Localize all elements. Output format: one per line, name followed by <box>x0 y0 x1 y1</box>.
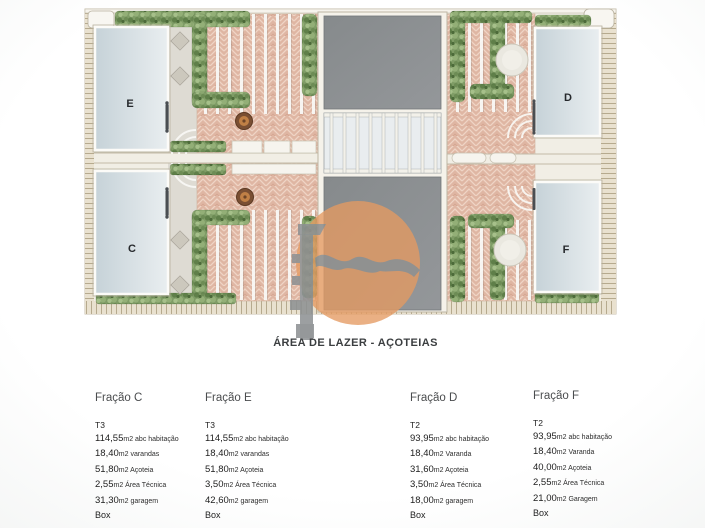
area-label: m2 Garagem <box>557 496 598 503</box>
unit-label-c: C <box>128 243 136 255</box>
unit-label-f: F <box>563 244 570 256</box>
fraction-area-line: 31,30m2 garagem <box>95 493 207 508</box>
fraction-box: Box <box>410 509 522 522</box>
unit-label-d: D <box>564 92 572 104</box>
area-label: m2 varandas <box>119 451 159 458</box>
area-label: m2 Açoteia <box>557 465 592 472</box>
area-label: m2 Varanda <box>557 449 595 456</box>
wall-right <box>601 9 616 314</box>
fraction-area-line: 18,00m2 garagem <box>410 493 522 508</box>
area-value: 18,40 <box>205 448 229 459</box>
fraction-box: Box <box>533 507 645 520</box>
fraction-name: Fração F <box>533 389 645 403</box>
area-value: 40,00 <box>533 462 557 473</box>
fraction-area-line: 18,40m2 varandas <box>205 446 317 461</box>
fraction-name: Fração C <box>95 391 207 405</box>
area-label: m2 Área Técnica <box>224 482 277 489</box>
fraction-area-line: 3,50m2 Área Técnica <box>410 477 522 492</box>
area-label: m2 garagem <box>229 498 268 505</box>
area-value: 3,50 <box>410 479 429 490</box>
area-value: 42,60 <box>205 495 229 506</box>
roof-box-top-left <box>88 11 114 28</box>
fraction-column-e: Fração E T3 114,55m2 abc habitação 18,40… <box>205 391 317 522</box>
area-value: 21,00 <box>533 493 557 504</box>
area-value: 31,30 <box>95 495 119 506</box>
page-title: ÁREA DE LAZER - AÇOTEIAS <box>0 337 705 349</box>
fraction-type: T2 <box>533 417 645 429</box>
area-label: m2 abc habitação <box>233 436 288 443</box>
fraction-column-c: Fração C T3 114,55m2 abc habitação 18,40… <box>95 391 207 522</box>
skylight-d: D <box>532 26 602 138</box>
floor-plan: E C D <box>84 6 618 346</box>
area-value: 18,00 <box>410 495 434 506</box>
area-label: m2 abc habitação <box>557 434 612 441</box>
fraction-name: Fração E <box>205 391 317 405</box>
fraction-area-line: 40,00m2 Açoteia <box>533 460 645 475</box>
fraction-area-line: 18,40m2 Varanda <box>410 446 522 461</box>
door-handle <box>533 188 536 210</box>
area-label: m2 abc habitação <box>123 436 178 443</box>
stairwell-skylight <box>324 113 441 173</box>
page: E C D <box>0 0 705 528</box>
fraction-area-line: 93,95m2 abc habitação <box>533 429 645 444</box>
fraction-area-line: 51,80m2 Açoteia <box>95 462 207 477</box>
area-label: m2 Área Técnica <box>552 480 605 487</box>
fraction-area-line: 42,60m2 garagem <box>205 493 317 508</box>
fraction-type: T2 <box>410 419 522 431</box>
area-label: m2 Varanda <box>434 451 472 458</box>
fraction-area-line: 18,40m2 Varanda <box>533 444 645 459</box>
fraction-area-line: 114,55m2 abc habitação <box>95 431 207 446</box>
skylight-c: C <box>93 169 170 296</box>
fraction-area-line: 114,55m2 abc habitação <box>205 431 317 446</box>
area-label: m2 Área Técnica <box>429 482 482 489</box>
area-value: 3,50 <box>205 479 224 490</box>
area-label: m2 Área Técnica <box>114 482 167 489</box>
area-label: m2 Açoteia <box>434 467 469 474</box>
area-value: 18,40 <box>95 448 119 459</box>
area-label: m2 garagem <box>434 498 473 505</box>
fraction-type: T3 <box>205 419 317 431</box>
fraction-area-line: 18,40m2 varandas <box>95 446 207 461</box>
door-handle <box>532 99 535 134</box>
area-value: 51,80 <box>205 464 229 475</box>
area-value: 18,40 <box>533 446 557 457</box>
area-value: 51,80 <box>95 464 119 475</box>
door-handle <box>165 187 168 218</box>
fraction-column-f: Fração F T2 93,95m2 abc habitação 18,40m… <box>533 389 645 520</box>
unit-label-e: E <box>126 98 133 110</box>
area-value: 93,95 <box>410 433 434 444</box>
fraction-area-line: 2,55m2 Área Técnica <box>533 475 645 490</box>
area-label: m2 abc habitação <box>434 436 489 443</box>
fraction-type: T3 <box>95 419 207 431</box>
area-label: m2 garagem <box>119 498 158 505</box>
area-value: 114,55 <box>205 433 233 444</box>
door-handle <box>165 101 168 132</box>
fraction-column-d: Fração D T2 93,95m2 abc habitação 18,40m… <box>410 391 522 522</box>
area-label: m2 Açoteia <box>119 467 154 474</box>
fraction-box: Box <box>205 509 317 522</box>
fraction-area-line: 3,50m2 Área Técnica <box>205 477 317 492</box>
fraction-area-line: 31,60m2 Açoteia <box>410 462 522 477</box>
area-value: 2,55 <box>533 477 552 488</box>
area-value: 114,55 <box>95 433 123 444</box>
roof-slab-top <box>324 16 441 109</box>
skylight-f: F <box>533 180 603 294</box>
fraction-area-line: 51,80m2 Açoteia <box>205 462 317 477</box>
area-value: 31,60 <box>410 464 434 475</box>
fraction-area-line: 2,55m2 Área Técnica <box>95 477 207 492</box>
area-value: 2,55 <box>95 479 114 490</box>
fraction-area-line: 21,00m2 Garagem <box>533 491 645 506</box>
skylight-e: E <box>93 25 170 152</box>
area-value: 93,95 <box>533 431 557 442</box>
fraction-box: Box <box>95 509 207 522</box>
area-value: 18,40 <box>410 448 434 459</box>
fraction-name: Fração D <box>410 391 522 405</box>
area-label: m2 varandas <box>229 451 269 458</box>
floor-plan-drawing: E C D <box>84 6 618 346</box>
area-label: m2 Açoteia <box>229 467 264 474</box>
fraction-area-line: 93,95m2 abc habitação <box>410 431 522 446</box>
